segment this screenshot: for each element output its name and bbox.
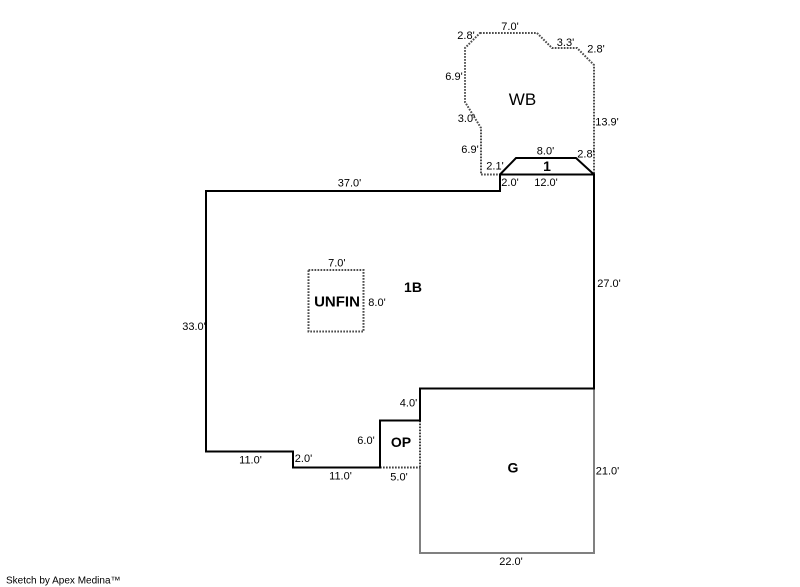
svg-text:G: G [508,460,519,476]
svg-text:2.8': 2.8' [577,149,594,161]
svg-text:11.0': 11.0' [329,471,352,483]
svg-text:WB: WB [509,90,536,109]
svg-text:7.0': 7.0' [501,21,518,33]
svg-text:2.1': 2.1' [486,161,503,173]
svg-text:27.0': 27.0' [597,278,621,290]
svg-text:4.0': 4.0' [400,398,417,410]
svg-text:5.0': 5.0' [390,472,407,484]
svg-text:13.9': 13.9' [595,117,619,129]
svg-text:2.8': 2.8' [587,44,604,56]
svg-text:8.0': 8.0' [537,146,554,158]
svg-text:Sketch by Apex Medina™: Sketch by Apex Medina™ [6,576,121,587]
svg-text:6.9': 6.9' [445,71,462,83]
svg-text:37.0': 37.0' [338,178,362,190]
svg-text:22.0': 22.0' [499,556,523,568]
svg-text:UNFIN: UNFIN [314,294,360,311]
svg-text:33.0': 33.0' [182,321,206,333]
svg-text:1: 1 [543,158,551,174]
svg-text:OP: OP [391,434,411,450]
svg-text:11.0': 11.0' [239,455,262,467]
svg-text:2.0': 2.0' [501,177,518,189]
svg-text:2.8': 2.8' [457,30,474,42]
svg-text:12.0': 12.0' [534,177,558,189]
svg-text:1B: 1B [404,279,422,295]
svg-text:6.9': 6.9' [461,144,478,156]
svg-text:6.0': 6.0' [357,435,374,447]
svg-text:3.3': 3.3' [557,37,574,49]
svg-text:8.0': 8.0' [368,297,385,309]
svg-text:2.0': 2.0' [295,453,312,465]
svg-text:7.0': 7.0' [328,257,345,269]
svg-text:21.0': 21.0' [596,466,620,478]
svg-text:3.0': 3.0' [458,113,475,125]
